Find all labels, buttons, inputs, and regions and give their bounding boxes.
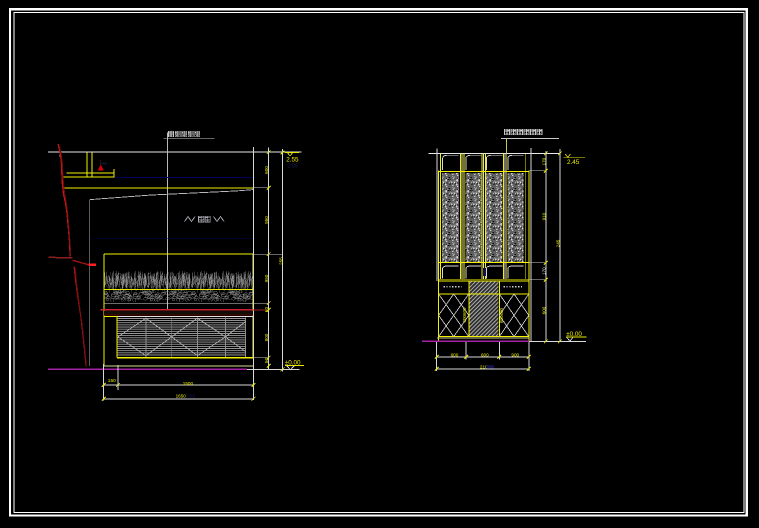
svg-text:600: 600 [481, 352, 489, 357]
svg-text:910: 910 [542, 212, 547, 220]
svg-text:950: 950 [264, 274, 269, 282]
svg-text:255: 255 [278, 257, 283, 265]
svg-text:900: 900 [511, 352, 519, 357]
svg-text:600: 600 [451, 352, 459, 357]
svg-text:2.45: 2.45 [567, 159, 580, 166]
svg-text:1650: 1650 [185, 394, 196, 399]
svg-text:2.85: 2.85 [288, 163, 298, 169]
svg-text:950: 950 [264, 216, 269, 224]
svg-text:1500: 1500 [183, 381, 194, 386]
svg-text:150: 150 [108, 378, 116, 384]
svg-text:600600: 600600 [462, 307, 467, 323]
svg-text:170: 170 [542, 267, 547, 275]
svg-text:170: 170 [542, 157, 547, 165]
svg-text:245: 245 [556, 239, 561, 247]
svg-text:600600: 600600 [499, 308, 504, 324]
svg-text:600: 600 [542, 306, 547, 314]
svg-text:800: 800 [264, 333, 269, 341]
svg-text:600: 600 [264, 166, 269, 174]
